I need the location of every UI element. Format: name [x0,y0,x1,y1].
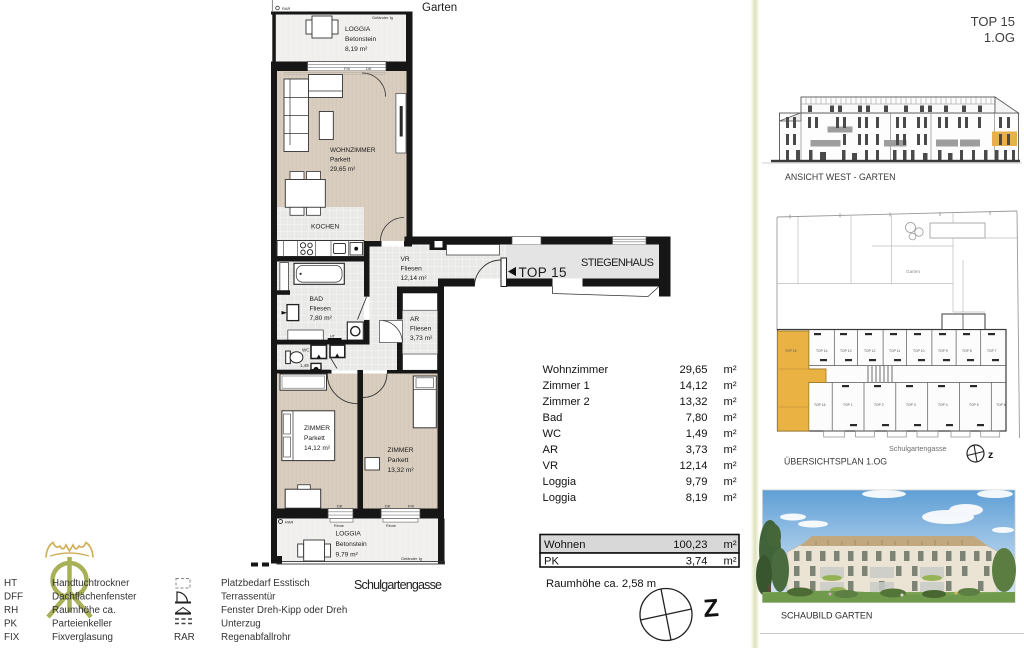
svg-text:29,65 m²: 29,65 m² [330,166,355,173]
svg-text:DK: DK [337,504,343,509]
svg-text:DFF: DFF [4,592,23,603]
svg-text:TOP 9: TOP 9 [938,349,948,353]
svg-text:12,14: 12,14 [680,460,708,472]
svg-text:TOP 8: TOP 8 [962,349,972,353]
svg-text:m²: m² [724,428,737,440]
svg-text:WOHNZIMMER: WOHNZIMMER [330,147,376,154]
svg-text:9,79 m²: 9,79 m² [336,552,359,559]
svg-text:Garten: Garten [422,2,457,14]
svg-text:Wohnen: Wohnen [544,539,585,551]
svg-text:Parkett: Parkett [304,435,325,442]
svg-text:RAR: RAR [285,520,294,525]
svg-text:Garten: Garten [906,269,920,274]
svg-text:Bad: Bad [543,412,563,424]
svg-text:8,19: 8,19 [686,492,708,504]
svg-text:Betonstein: Betonstein [345,36,376,43]
svg-text:9,79: 9,79 [686,476,708,488]
svg-text:Parteienkeller: Parteienkeller [52,619,113,630]
svg-text:WC: WC [543,428,562,440]
svg-text:13,32: 13,32 [680,396,708,408]
svg-text:29,65: 29,65 [680,364,708,376]
svg-text:Rinne: Rinne [386,524,396,528]
svg-text:1.OG: 1.OG [984,30,1015,45]
svg-text:Platzbedarf Esstisch: Platzbedarf Esstisch [221,578,310,589]
svg-text:ÜBERSICHTSPLAN 1.OG: ÜBERSICHTSPLAN 1.OG [784,457,887,467]
svg-text:TOP 3: TOP 3 [906,403,916,407]
svg-text:Fenster Dreh-Kipp oder Dreh: Fenster Dreh-Kipp oder Dreh [221,605,347,616]
svg-text:100,23: 100,23 [673,539,707,551]
svg-text:3,73: 3,73 [686,444,708,456]
svg-text:Fliesen: Fliesen [401,266,423,273]
svg-text:m²: m² [724,460,737,472]
svg-text:Fixverglasung: Fixverglasung [52,632,113,643]
svg-text:TOP 15: TOP 15 [519,265,567,280]
svg-text:TOP 11: TOP 11 [889,349,900,353]
svg-text:Fliesen: Fliesen [410,326,432,333]
svg-text:DK: DK [366,66,372,71]
svg-text:Loggia: Loggia [543,476,577,488]
svg-text:TOP 16: TOP 16 [814,403,826,407]
svg-text:3,74: 3,74 [686,556,708,568]
svg-text:Raumhöhe ca. 2,58 m: Raumhöhe ca. 2,58 m [546,578,656,590]
svg-text:m²: m² [724,556,737,568]
svg-text:FIX: FIX [408,504,415,509]
svg-text:FIX: FIX [4,632,20,643]
svg-text:ANSICHT WEST - GARTEN: ANSICHT WEST - GARTEN [785,172,895,182]
svg-text:Fliesen: Fliesen [310,306,332,313]
svg-text:m²: m² [724,539,737,551]
svg-text:Parkett: Parkett [388,457,409,464]
svg-text:m²: m² [724,380,737,392]
svg-text:Schulgartengasse: Schulgartengasse [354,578,442,592]
svg-text:FIX: FIX [344,66,351,71]
svg-text:WC: WC [302,348,310,353]
svg-text:m²: m² [724,492,737,504]
svg-text:KOCHEN: KOCHEN [311,224,339,231]
svg-text:HT: HT [330,335,336,339]
svg-text:Raumhöhe ca.: Raumhöhe ca. [52,605,116,616]
svg-text:Unterzug: Unterzug [221,619,261,630]
svg-text:TOP 5: TOP 5 [969,403,979,407]
svg-text:TOP 15: TOP 15 [785,349,797,353]
svg-text:RH: RH [4,605,18,616]
svg-text:TOP 1: TOP 1 [843,403,853,407]
svg-text:LOGGIA: LOGGIA [336,531,362,538]
svg-text:TOP 7: TOP 7 [987,349,997,353]
svg-text:Wohnzimmer: Wohnzimmer [543,364,609,376]
svg-text:14,12: 14,12 [680,380,708,392]
svg-text:DK: DK [385,504,391,509]
svg-text:7,80: 7,80 [686,412,708,424]
svg-text:ZIMMER: ZIMMER [388,447,414,454]
svg-text:VR: VR [401,256,410,263]
svg-text:Betonstein: Betonstein [336,541,367,548]
svg-text:TOP 13: TOP 13 [840,349,852,353]
svg-text:Zimmer 2: Zimmer 2 [543,396,590,408]
svg-text:8,19 m²: 8,19 m² [345,46,368,53]
svg-text:TOP 4: TOP 4 [938,403,948,407]
svg-text:m²: m² [724,476,737,488]
svg-text:Loggia: Loggia [543,492,577,504]
svg-text:Geländer Ig: Geländer Ig [372,15,393,20]
svg-text:14,12 m²: 14,12 m² [304,445,331,452]
svg-text:3,73 m²: 3,73 m² [410,335,433,342]
svg-text:m²: m² [724,412,737,424]
svg-text:Geländer Ig: Geländer Ig [401,556,422,561]
svg-text:7,80 m²: 7,80 m² [310,315,333,322]
svg-text:1,49: 1,49 [686,428,708,440]
svg-text:m²: m² [724,444,737,456]
svg-text:TOP 15: TOP 15 [971,14,1015,29]
svg-text:TOP 12: TOP 12 [864,349,876,353]
svg-text:Dachflächenfenster: Dachflächenfenster [52,592,137,603]
svg-text:12,14 m²: 12,14 m² [401,275,428,282]
svg-text:z: z [988,449,993,461]
svg-text:Handtuchtrockner: Handtuchtrockner [52,578,130,589]
svg-text:AR: AR [543,444,559,456]
svg-text:TOP 10: TOP 10 [913,349,925,353]
svg-text:Schulgartengasse: Schulgartengasse [889,444,947,453]
svg-text:1,49: 1,49 [300,363,309,368]
svg-text:TOP 2: TOP 2 [874,403,884,407]
svg-text:VR: VR [543,460,559,472]
svg-text:LOGGIA: LOGGIA [345,26,371,33]
svg-text:Zimmer 1: Zimmer 1 [543,380,590,392]
svg-text:RAR: RAR [174,632,195,643]
svg-text:ZIMMER: ZIMMER [304,425,330,432]
svg-text:PK: PK [544,556,559,568]
svg-text:Z: Z [702,594,719,623]
svg-text:RAR: RAR [282,6,291,11]
svg-text:STIEGENHAUS: STIEGENHAUS [581,257,654,269]
svg-text:Parkett: Parkett [330,157,350,164]
svg-text:m²: m² [724,364,737,376]
svg-text:SCHAUBILD GARTEN: SCHAUBILD GARTEN [781,611,872,621]
svg-text:PK: PK [4,619,18,630]
svg-text:Terrassentür: Terrassentür [221,592,276,603]
svg-text:Rinne: Rinne [334,524,344,528]
svg-text:TOP 14: TOP 14 [816,349,828,353]
svg-text:Regenabfallrohr: Regenabfallrohr [221,632,291,643]
svg-text:m²: m² [724,396,737,408]
svg-text:AR: AR [410,316,419,323]
svg-text:13,32 m²: 13,32 m² [388,467,415,474]
svg-text:HT: HT [4,578,17,589]
svg-text:BAD: BAD [310,296,324,303]
svg-text:TOP 6: TOP 6 [996,403,1006,407]
